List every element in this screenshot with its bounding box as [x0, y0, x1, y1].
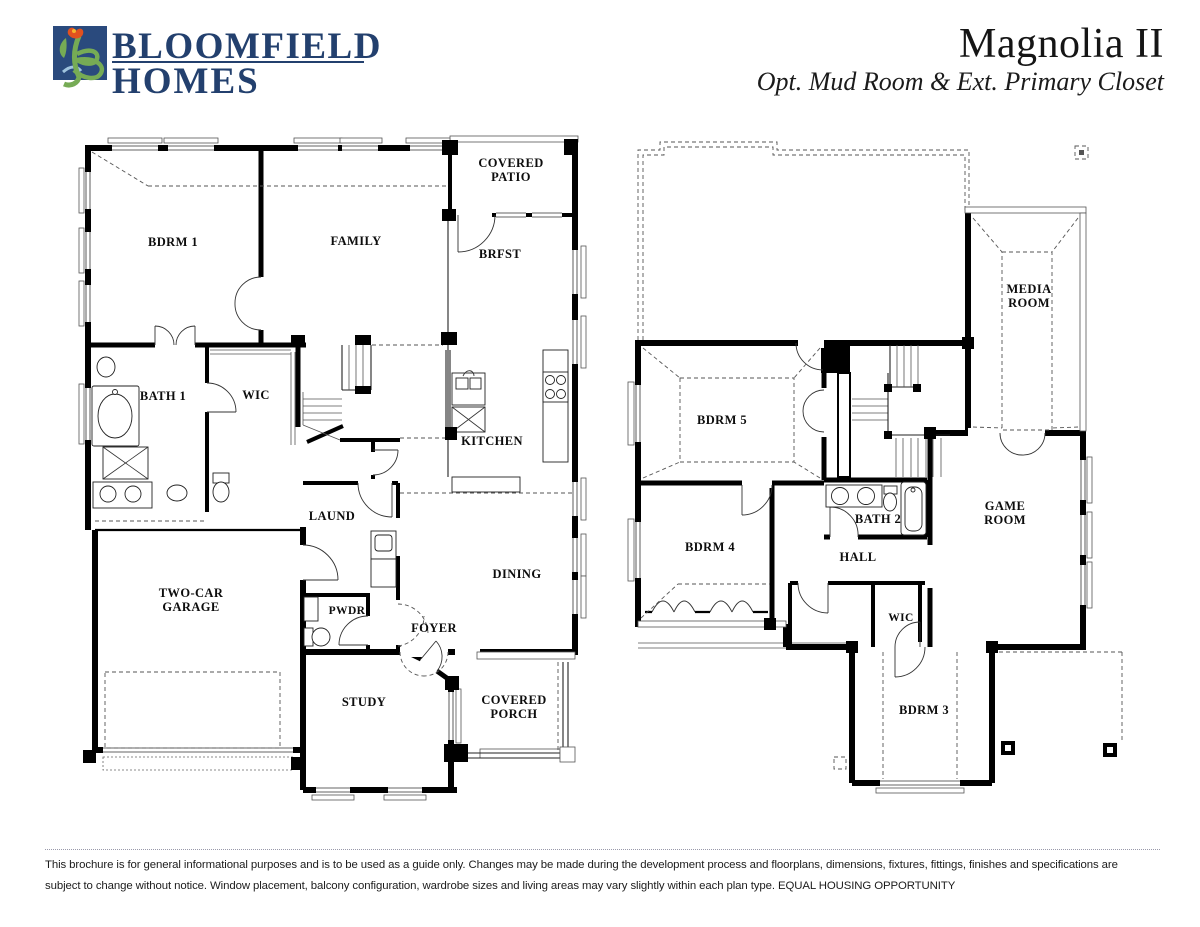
room-label-bdrm4: BDRM 4: [685, 540, 735, 554]
corner-sink-icon: [97, 357, 115, 377]
second-floor-stairs: [852, 345, 950, 477]
room-label-covered-porch-2: PORCH: [490, 707, 537, 721]
bath2-tub-icon: [901, 482, 926, 535]
bath2-toilet-icon: [884, 486, 898, 511]
footer-disclaimer: This brochure is for general information…: [45, 849, 1160, 898]
room-label-bdrm5: BDRM 5: [697, 413, 747, 427]
powder-sink-icon: [304, 597, 318, 621]
room-label-kitchen: KITCHEN: [461, 434, 523, 448]
kitchen-counter: [452, 477, 520, 492]
disclaimer-line2: subject to change without notice. Window…: [45, 878, 1160, 895]
toilet-icon: [213, 473, 229, 502]
stair-shaft-wall: [838, 373, 850, 477]
room-label-family: FAMILY: [330, 234, 381, 248]
room-label-garage-2: GARAGE: [162, 600, 219, 614]
second-floor-fixtures: [826, 482, 926, 535]
kitchen-island: [543, 350, 568, 462]
porch-post: [1103, 743, 1117, 757]
garage-storage-outline: [105, 672, 280, 748]
room-label-hall: HALL: [839, 550, 876, 564]
second-floor-roof-outline: [638, 142, 1122, 769]
second-floor-posts: [764, 337, 1117, 757]
room-label-brfst: BRFST: [479, 247, 522, 261]
room-label-game-room: GAME: [985, 499, 1026, 513]
room-label-covered-patio: COVERED: [478, 156, 543, 170]
room-label-wic2: WIC: [888, 612, 913, 624]
bath2-vanity-icon: [826, 485, 882, 507]
room-label-bath2: BATH 2: [855, 512, 901, 526]
room-label-covered-porch: COVERED: [481, 693, 546, 707]
second-floor-plan: MEDIA ROOM BDRM 5 BDRM 4 BATH 2 HALL GAM…: [628, 142, 1122, 793]
room-label-wic: WIC: [242, 388, 270, 402]
vanity-sinks-icon: [93, 482, 187, 508]
room-label-laund: LAUND: [309, 509, 355, 523]
room-label-media-room: MEDIA: [1006, 282, 1051, 296]
first-floor-plan: COVERED PATIO BDRM 1 FAMILY BRFST BATH 1…: [79, 136, 586, 800]
room-label-bdrm3: BDRM 3: [899, 703, 949, 717]
room-label-pwdr: PWDR: [329, 605, 366, 617]
room-label-study: STUDY: [342, 695, 386, 709]
room-label-media-room-2: ROOM: [1008, 296, 1050, 310]
first-floor-ceiling-lines: [92, 152, 572, 521]
porch-post: [1001, 741, 1015, 755]
stove-icon: [543, 372, 568, 402]
room-label-covered-patio-2: PATIO: [491, 170, 531, 184]
room-label-bath1: BATH 1: [140, 389, 186, 403]
powder-toilet-icon: [304, 628, 330, 646]
room-label-garage: TWO-CAR: [159, 586, 224, 600]
room-label-game-room-2: ROOM: [984, 513, 1026, 527]
room-label-bdrm1: BDRM 1: [148, 235, 198, 249]
second-floor-windows: [628, 382, 1092, 793]
bathtub-icon: [92, 386, 139, 446]
kitchen-sink-icon: [452, 371, 485, 405]
washer-dryer-icon: [371, 531, 396, 587]
brochure-page: BLOOMFIELD HOMES Magnolia II Opt. Mud Ro…: [0, 0, 1200, 927]
floor-plans: COVERED PATIO BDRM 1 FAMILY BRFST BATH 1…: [0, 0, 1200, 927]
room-label-foyer: FOYER: [411, 621, 457, 635]
disclaimer-line1: This brochure is for general information…: [45, 857, 1160, 874]
room-label-dining: DINING: [493, 567, 542, 581]
shower-icon: [103, 447, 148, 479]
